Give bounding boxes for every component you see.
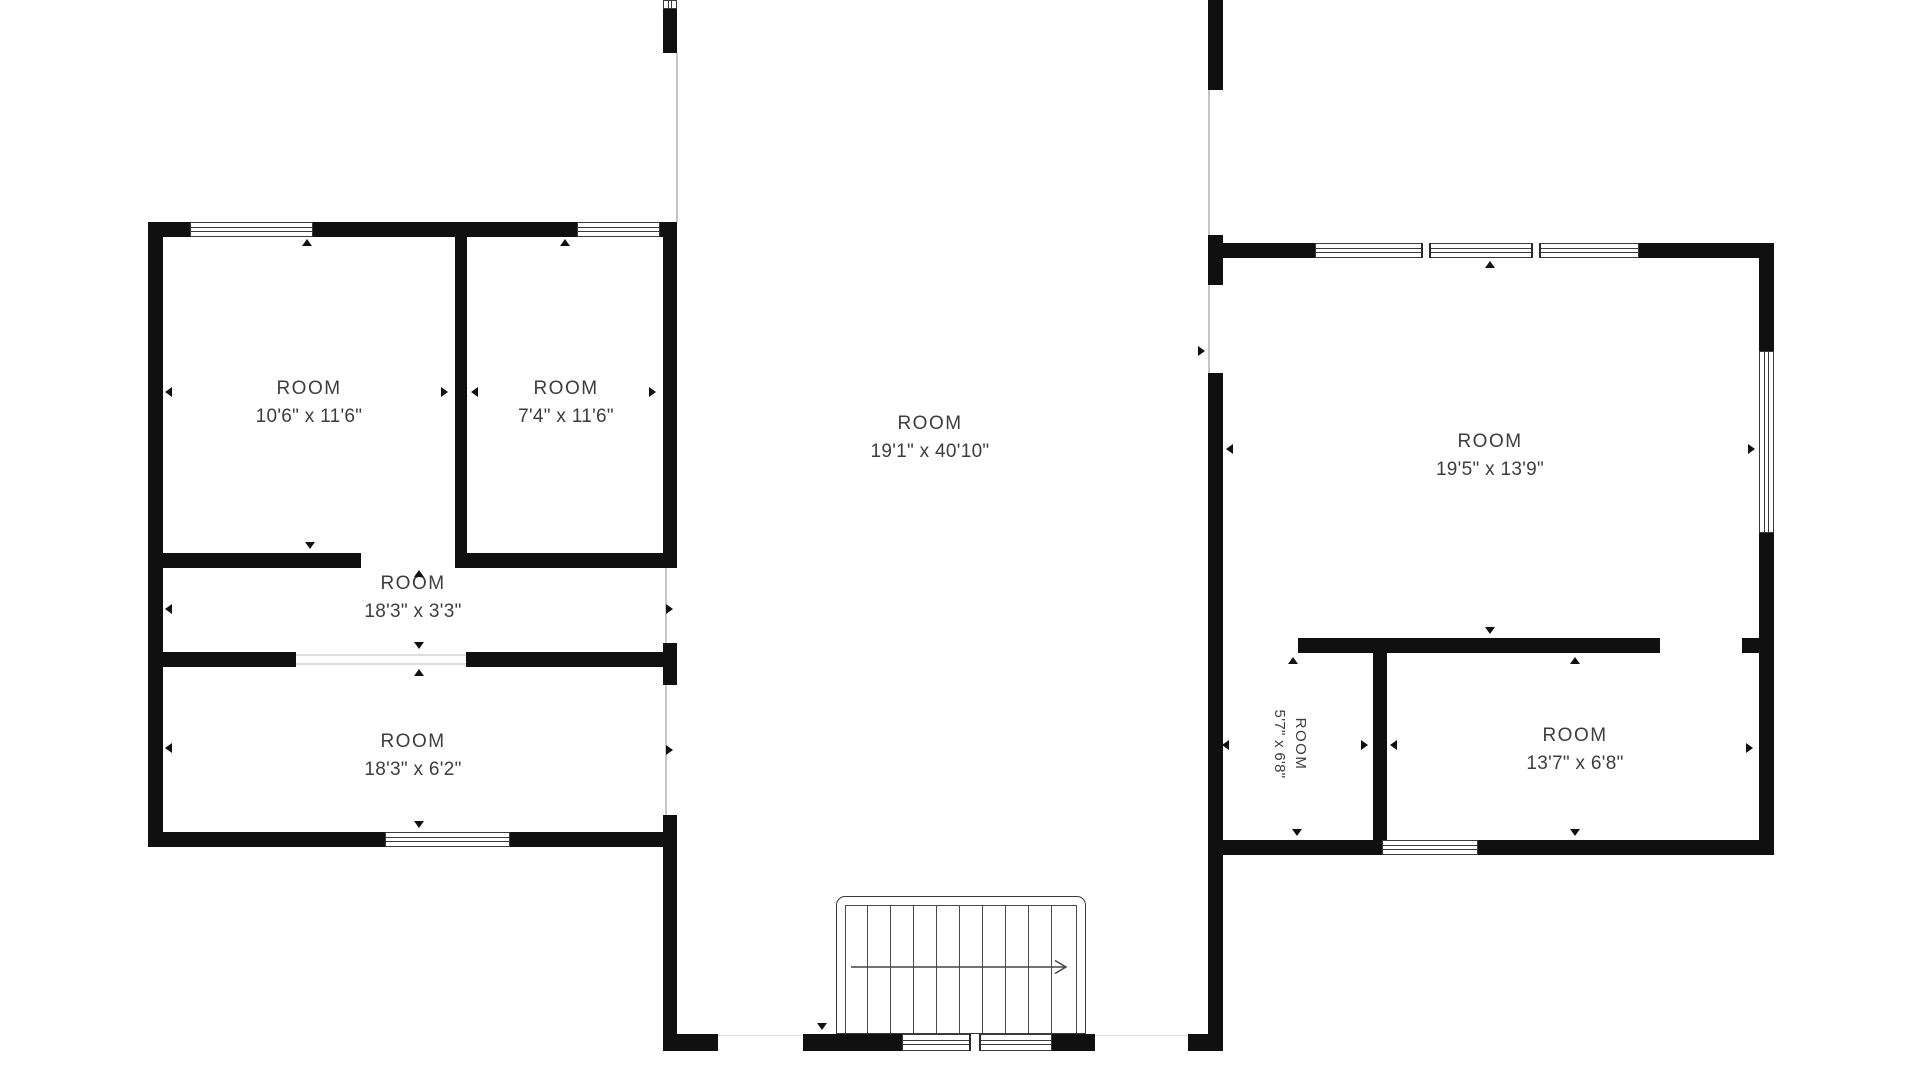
wall (1759, 243, 1774, 351)
room-name: ROOM (518, 375, 614, 403)
room-label-group: ROOM 18'3" x 3'3" (364, 570, 461, 626)
room-dimensions: 13'7" x 6'8" (1526, 750, 1623, 778)
arrow-marker-icon (666, 745, 673, 755)
room-dimensions: 5'7" x 6'8" (1269, 710, 1290, 779)
wall (803, 1034, 902, 1051)
wall (1639, 243, 1774, 258)
window (1382, 840, 1478, 855)
room-name: ROOM (1436, 428, 1544, 456)
arrow-marker-icon (649, 387, 656, 397)
room-label-group: ROOM 19'5" x 13'9" (1436, 428, 1544, 484)
wall (163, 553, 361, 568)
wall (1478, 840, 1774, 855)
wall (1759, 533, 1774, 855)
wall (1223, 243, 1315, 258)
room-label-group: ROOM 7'4" x 11'6" (518, 375, 614, 431)
wall (663, 8, 677, 53)
window-mullion (1421, 243, 1431, 258)
window (577, 222, 660, 237)
wall (1742, 638, 1759, 653)
stair-direction-arrow-icon (851, 959, 1073, 975)
window (663, 0, 677, 9)
room-dimensions: 19'1" x 40'10" (871, 438, 990, 466)
arrow-marker-icon (165, 743, 172, 753)
window-mullion (969, 1034, 981, 1051)
room-label-group: ROOM 5'7" x 6'8" (1269, 710, 1311, 779)
room-dimensions: 18'3" x 3'3" (364, 598, 461, 626)
arrow-marker-icon (1570, 657, 1580, 664)
room-label-group: ROOM 18'3" x 6'2" (364, 728, 461, 784)
wall (663, 1034, 718, 1051)
wall (1052, 1034, 1095, 1051)
door-opening-line (1208, 285, 1210, 373)
arrow-marker-icon (305, 542, 315, 549)
arrow-marker-icon (414, 669, 424, 676)
wall (1208, 373, 1223, 855)
arrow-marker-icon (1570, 829, 1580, 836)
room-dimensions: 18'3" x 6'2" (364, 756, 461, 784)
room-dimensions: 10'6" x 11'6" (256, 403, 363, 431)
arrow-marker-icon (1361, 740, 1368, 750)
opening-line (1095, 1035, 1188, 1036)
opening-line (676, 53, 678, 222)
wall (1188, 1034, 1223, 1051)
room-label-group: ROOM 10'6" x 11'6" (256, 375, 363, 431)
room-name: ROOM (1290, 710, 1311, 779)
window-mullion (1531, 243, 1541, 258)
arrow-marker-icon (1485, 627, 1495, 634)
wall (1373, 653, 1387, 840)
wall (663, 847, 677, 1051)
arrow-marker-icon (1226, 444, 1233, 454)
arrow-marker-icon (471, 387, 478, 397)
window (1315, 243, 1639, 258)
arrow-marker-icon (165, 604, 172, 614)
wall (663, 222, 677, 568)
window (1759, 351, 1774, 533)
window (385, 832, 510, 847)
arrow-marker-icon (1288, 657, 1298, 664)
arrow-marker-icon (1746, 743, 1753, 753)
room-name: ROOM (364, 728, 461, 756)
arrow-marker-icon (666, 604, 673, 614)
wall (148, 222, 163, 847)
room-dimensions: 7'4" x 11'6" (518, 403, 614, 431)
opening-line (718, 1035, 803, 1036)
wall (466, 652, 663, 667)
floor-plan-canvas: ROOM 10'6" x 11'6" ROOM 7'4" x 11'6" ROO… (0, 0, 1920, 1080)
wall (1208, 235, 1223, 285)
arrow-marker-icon (1292, 829, 1302, 836)
room-name: ROOM (256, 375, 363, 403)
arrow-marker-icon (165, 387, 172, 397)
arrow-marker-icon (817, 1023, 827, 1030)
arrow-marker-icon (1390, 740, 1397, 750)
arrow-marker-icon (414, 570, 424, 577)
wall (163, 652, 296, 667)
room-label-group: ROOM 13'7" x 6'8" (1526, 722, 1623, 778)
arrow-marker-icon (1222, 740, 1229, 750)
arrow-marker-icon (441, 387, 448, 397)
room-name: ROOM (364, 570, 461, 598)
arrow-marker-icon (414, 642, 424, 649)
wall (1298, 638, 1660, 653)
arrow-marker-icon (1748, 444, 1755, 454)
wall (1208, 0, 1223, 90)
window (190, 222, 313, 237)
wall (663, 643, 677, 685)
staircase (836, 896, 1086, 1034)
arrow-marker-icon (414, 821, 424, 828)
room-dimensions: 19'5" x 13'9" (1436, 456, 1544, 484)
wall (1208, 840, 1382, 855)
wall (455, 553, 663, 568)
room-label-group: ROOM 19'1" x 40'10" (871, 410, 990, 466)
arrow-marker-icon (560, 239, 570, 246)
arrow-marker-icon (1485, 261, 1495, 268)
arrow-marker-icon (302, 239, 312, 246)
room-name: ROOM (1526, 722, 1623, 750)
room-name: ROOM (871, 410, 990, 438)
wall (1208, 855, 1223, 1051)
wall (663, 815, 677, 847)
arrow-marker-icon (1198, 346, 1205, 356)
opening-line (1208, 90, 1210, 235)
cased-opening-line (296, 663, 466, 665)
cased-opening-line (296, 654, 466, 656)
wall (455, 237, 467, 568)
